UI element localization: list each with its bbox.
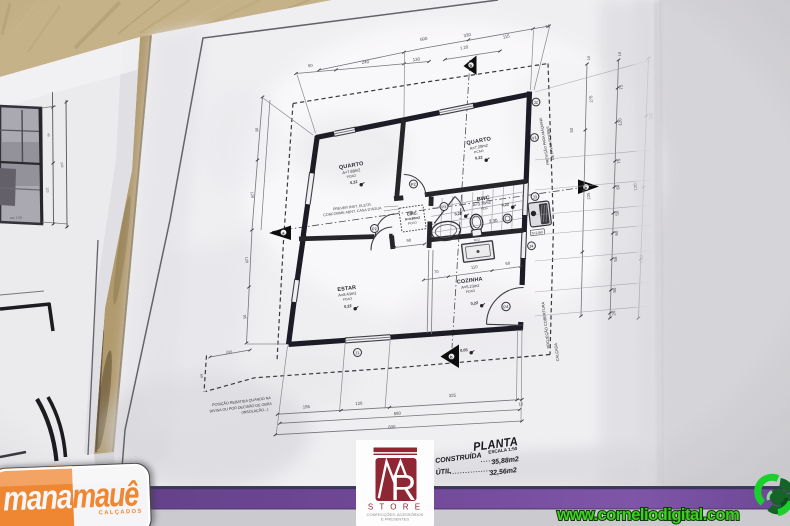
svg-text:www.corneliodigital.com: www.corneliodigital.com: [556, 506, 739, 524]
svg-text:S T O R E: S T O R E: [368, 503, 422, 512]
svg-text:mana: mana: [2, 478, 72, 519]
svg-text:E PRESENTES: E PRESENTES: [381, 517, 409, 522]
